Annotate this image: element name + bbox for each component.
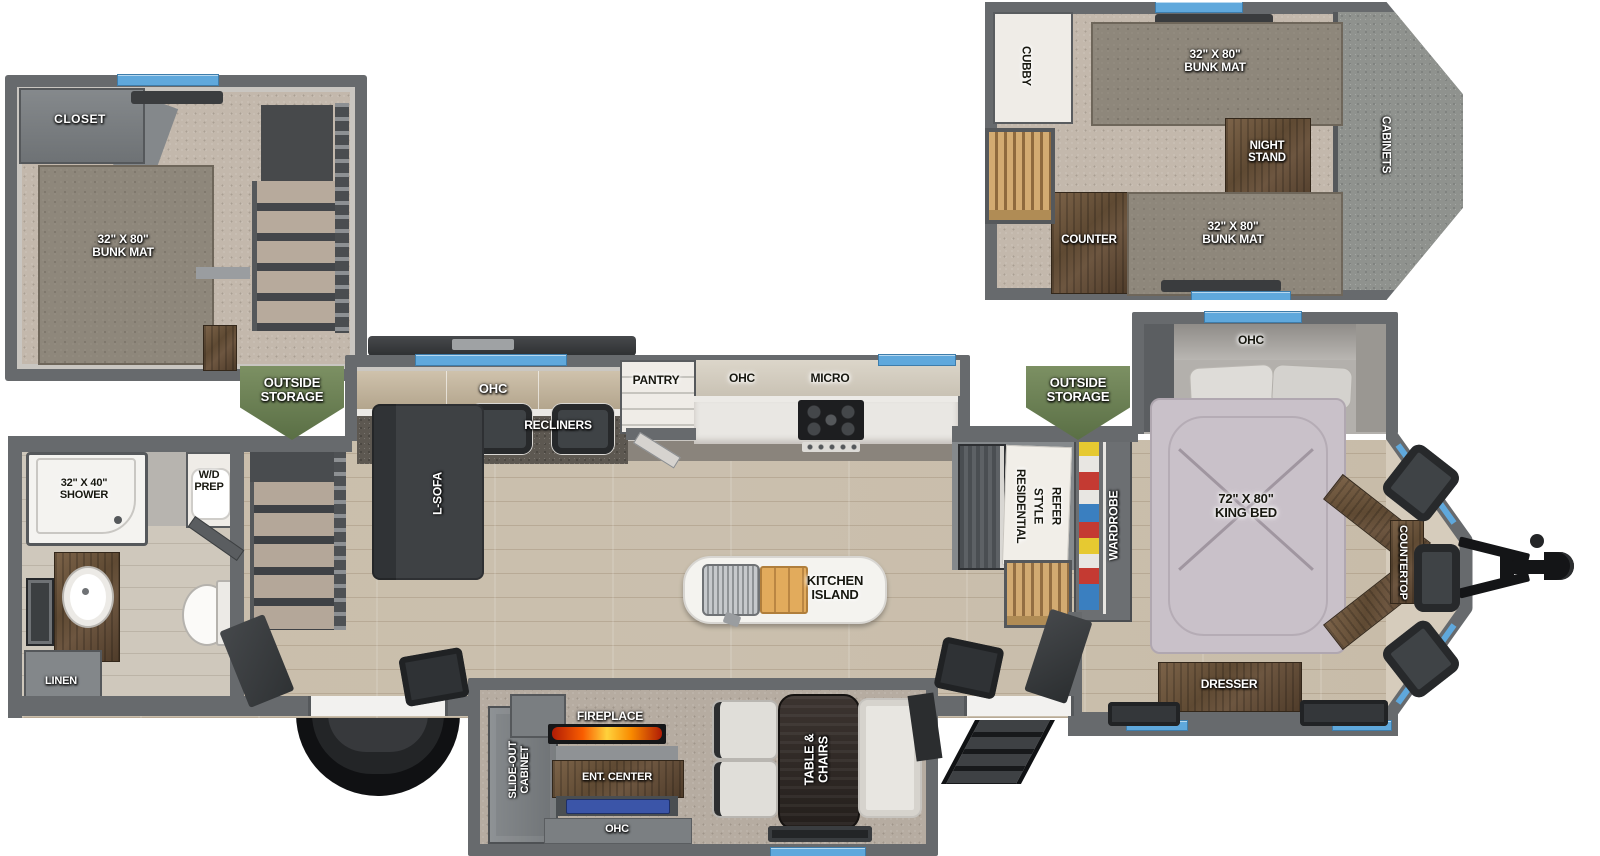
wd-prep-label: W/D PREP (184, 470, 234, 494)
kitchen-window (878, 354, 956, 366)
bath-sink (62, 566, 114, 628)
loft-left-stair-landing (203, 325, 237, 371)
countertop-label: COUNTERTOP (1394, 516, 1418, 608)
loft-left-stairs (252, 181, 337, 331)
dresser-label: DRESSER (1158, 678, 1300, 691)
bedroom-slide-window (1204, 311, 1302, 323)
wardrobe-label: WARDROBE (1108, 483, 1121, 567)
kitchen-ohc-label: OHC (712, 372, 772, 385)
loft-left-bunk-mat (38, 165, 214, 365)
loft-left-wall-stub (196, 267, 250, 279)
linen-label: LINEN (24, 676, 98, 688)
l-sofa-label: L-SOFA (432, 458, 445, 528)
dinette-chair-2 (712, 760, 778, 818)
bath-faucet (82, 588, 89, 595)
front-chair-2 (1414, 544, 1460, 612)
counter-label: COUNTER (1047, 234, 1131, 246)
slide-out-cabinet-label: SLIDE-OUT CABINET (508, 730, 532, 810)
bunk-bottom-label: 32" X 80" BUNK MAT (1163, 220, 1303, 246)
loft-left: CLOSET 32" X 80" BUNK MAT (5, 75, 367, 381)
recliners-label: RECLINERS (498, 419, 618, 432)
loft-right: CABINETS CUBBY 32" X 80" BUNK MAT NIGHT … (985, 2, 1463, 300)
wall-left (8, 436, 22, 718)
hitch-jack (1530, 534, 1544, 548)
fireplace-label: FIREPLACE (560, 710, 660, 723)
cabinets-label: CABINETS (1377, 90, 1397, 200)
king-bed-quilt-outline (1168, 416, 1328, 636)
bunk-top-label: 32" X 80" BUNK MAT (1145, 48, 1285, 74)
wardrobe-clothes (1079, 442, 1099, 610)
night-stand-label: NIGHT STAND (1225, 140, 1309, 165)
wall-bottom-entry2 (938, 696, 964, 716)
loft-left-bunk-label: 32" X 80" BUNK MAT (53, 233, 193, 259)
ent-center-label: ENT. CENTER (552, 772, 682, 784)
closet-shelf (131, 91, 223, 104)
king-bed-label: 72" X 80" KING BED (1196, 492, 1296, 520)
fireplace-flame (552, 727, 662, 740)
pantry-label: PANTRY (620, 374, 692, 387)
shower-drain (114, 516, 122, 524)
stove (798, 400, 864, 440)
ent-center-shelf (556, 746, 678, 760)
outside-storage-right-label: OUTSIDE STORAGE (1026, 376, 1130, 404)
stove-knob-strip (802, 442, 860, 452)
loft-right-window-bottom (1191, 291, 1291, 303)
tv-screen (566, 799, 670, 814)
dinette-table-label: TABLE & CHAIRS (804, 721, 831, 799)
bath-mirror (26, 578, 54, 646)
closet-box (19, 88, 145, 164)
l-sofa (372, 404, 484, 580)
living-slide-window (415, 354, 567, 366)
entry-steps-2 (941, 720, 1055, 784)
bath-wall-fill (142, 452, 186, 526)
island-label: KITCHEN ISLAND (792, 574, 878, 602)
floorplan-canvas: CLOSET 32" X 80" BUNK MAT CABINETS CUBBY… (0, 0, 1600, 856)
dinette-shelf (768, 826, 872, 842)
outside-storage-left-label: OUTSIDE STORAGE (240, 376, 344, 404)
living-slide-awning-handle (452, 339, 514, 350)
living-ohc-label: OHC (455, 382, 531, 396)
cubby-label: CUBBY (1017, 36, 1035, 96)
dinette-chair-1 (712, 700, 778, 760)
bedroom-tower-right (1356, 324, 1386, 432)
stairs-steps (250, 482, 338, 630)
rear-ohc-label: OHC (544, 824, 690, 836)
pantry-box (620, 360, 696, 434)
hitch-coupler (1544, 552, 1574, 580)
stairs-railing (334, 444, 346, 630)
wall-top-left (8, 436, 352, 452)
loft-right-stairs (985, 128, 1055, 224)
bedroom-ohc-label: OHC (1218, 334, 1284, 347)
loft-left-stair-railing (335, 103, 349, 333)
rear-slide-window (770, 847, 866, 856)
wall-top-mid (952, 426, 1138, 442)
loft-left-stairwell (261, 105, 333, 181)
bunk-mat-top (1091, 22, 1343, 126)
refer-fridge (958, 444, 1006, 570)
bedroom-bench-right (1300, 700, 1388, 726)
closet-label: CLOSET (27, 113, 133, 126)
loft-right-cabinets-zone (1333, 12, 1464, 290)
refer-label: RESIDENTIAL STYLE REFER (1010, 452, 1064, 560)
loft-left-window (117, 74, 219, 86)
bedroom-bench-left (1108, 702, 1180, 726)
loft-right-window-top (1155, 1, 1243, 13)
micro-label: MICRO (790, 372, 870, 385)
shower-label: 32" X 40" SHOWER (32, 478, 136, 502)
island-sink (702, 564, 760, 616)
